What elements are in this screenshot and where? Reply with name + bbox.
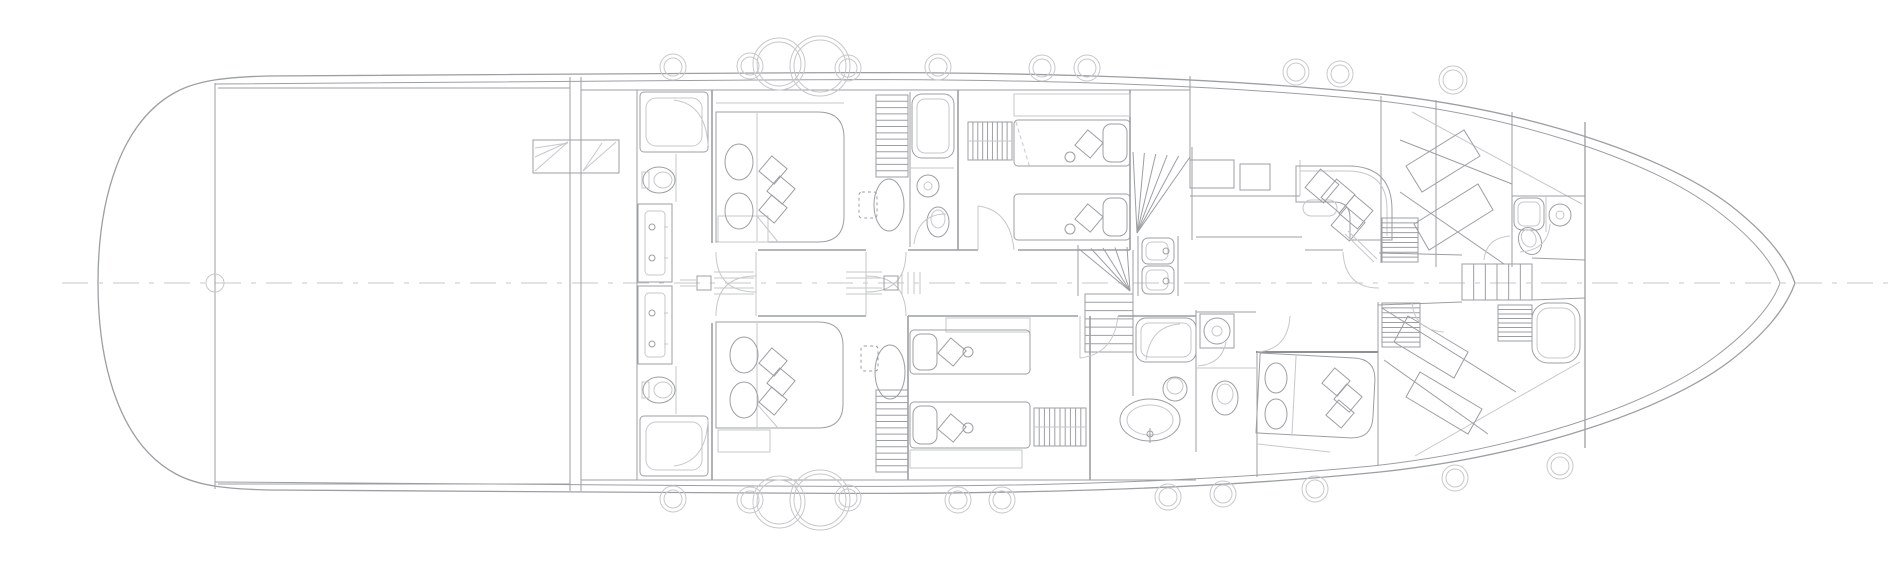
deck-hatch bbox=[790, 470, 850, 530]
utility-room-starboard-line bbox=[1217, 384, 1233, 404]
crew-cabin-starboard bbox=[1382, 303, 1580, 456]
sink bbox=[917, 175, 939, 197]
deck-hatch bbox=[794, 40, 846, 92]
vip-cabin-starboard-line bbox=[718, 430, 770, 452]
toilet bbox=[927, 207, 949, 237]
faucet bbox=[649, 310, 655, 316]
partition-walls-line bbox=[1532, 298, 1585, 300]
porthole bbox=[839, 489, 857, 507]
bathroom-column-port bbox=[638, 92, 708, 282]
twin-cabin-port-line bbox=[917, 99, 949, 153]
pillow bbox=[1103, 124, 1127, 162]
deck-plan-svg bbox=[0, 0, 1900, 568]
partition-walls-line bbox=[1532, 258, 1585, 260]
bathroom-column-port-line bbox=[645, 211, 665, 275]
galley bbox=[1138, 160, 1300, 296]
porthole bbox=[993, 491, 1011, 509]
door-arc bbox=[914, 214, 946, 244]
pillow bbox=[1265, 363, 1287, 393]
porthole bbox=[1331, 65, 1349, 83]
doors bbox=[716, 206, 1510, 358]
porthole bbox=[741, 491, 759, 509]
vip-cabin-starboard-line bbox=[757, 404, 778, 428]
crew-cabin-port-line bbox=[1412, 112, 1582, 204]
porthole bbox=[1287, 63, 1305, 81]
twin-cabin-starboard-line bbox=[910, 450, 1022, 468]
nightstand bbox=[1075, 130, 1103, 158]
crew-cabin-port bbox=[1382, 112, 1582, 264]
porthole bbox=[1078, 59, 1096, 77]
vip-cabin-port bbox=[716, 95, 908, 242]
faucet bbox=[649, 255, 655, 261]
vip-cabin-starboard bbox=[716, 322, 908, 472]
bathroom-column-port-line bbox=[646, 98, 702, 146]
bathroom-column-starboard bbox=[638, 286, 708, 476]
nightstand bbox=[1075, 204, 1103, 232]
stairs-fan-main bbox=[1133, 152, 1137, 233]
washer bbox=[1200, 314, 1234, 348]
porthole bbox=[1306, 480, 1324, 498]
stool bbox=[1065, 224, 1075, 234]
bathroom-column-starboard-line bbox=[645, 293, 665, 357]
bow-bathroom-port-line bbox=[1518, 202, 1540, 226]
utility-room-starboard-line bbox=[1212, 326, 1222, 336]
faucet bbox=[649, 224, 655, 230]
aft-deck-line bbox=[535, 143, 568, 148]
yacht-deck-plan-page bbox=[0, 0, 1900, 568]
pillow bbox=[730, 337, 758, 373]
porthole bbox=[1551, 457, 1569, 475]
pillow bbox=[1103, 198, 1127, 236]
twin-cabin-port-line bbox=[1014, 94, 1130, 116]
crew-cabin-starboard-line bbox=[1384, 360, 1488, 434]
toilet bbox=[1212, 381, 1238, 415]
counter bbox=[1190, 160, 1234, 188]
pillow bbox=[725, 193, 753, 229]
crew-cabin-port-line bbox=[1400, 140, 1512, 184]
sofa bbox=[1296, 166, 1392, 240]
toilet bbox=[1163, 377, 1187, 401]
galley-line bbox=[1146, 242, 1168, 260]
bow-bathroom-port-line bbox=[1556, 211, 1564, 219]
twin-cabin-port-line bbox=[931, 210, 945, 228]
berth bbox=[1414, 184, 1493, 250]
stool bbox=[1065, 152, 1075, 162]
cushion bbox=[767, 176, 795, 204]
shower-door-arc bbox=[674, 420, 708, 466]
cushion bbox=[759, 156, 787, 184]
aft-deck-line bbox=[535, 142, 568, 171]
cushion bbox=[1322, 368, 1350, 396]
stairs-fan-main bbox=[1137, 155, 1167, 233]
bathroom-column-port-line bbox=[654, 172, 672, 188]
twin-cabin-port bbox=[910, 92, 1130, 247]
double-bed bbox=[716, 322, 843, 428]
bow-berth bbox=[1532, 303, 1580, 363]
porthole bbox=[1214, 485, 1232, 503]
nightstand bbox=[938, 414, 966, 442]
twin-cabin-starboard bbox=[910, 318, 1086, 468]
utility-room-starboard-line bbox=[1204, 318, 1230, 344]
cushion bbox=[759, 195, 787, 223]
twin-cabin-port-line bbox=[924, 182, 932, 190]
sink bbox=[1549, 204, 1571, 226]
bow-bathroom-port bbox=[1512, 196, 1585, 258]
door-arc bbox=[978, 206, 1014, 250]
pillow bbox=[725, 144, 753, 180]
double-bed bbox=[1256, 353, 1376, 439]
pillow bbox=[1265, 399, 1287, 429]
cushion bbox=[1339, 195, 1373, 229]
shower bbox=[640, 416, 708, 476]
side-table bbox=[874, 179, 904, 231]
shower bbox=[640, 92, 708, 152]
forward-cabin-starboard-line bbox=[1258, 444, 1330, 452]
door-arc bbox=[716, 276, 756, 316]
porthole bbox=[1443, 70, 1463, 90]
forward-cabin-starboard-line bbox=[1292, 355, 1296, 436]
shower-door-arc bbox=[674, 100, 708, 146]
door-leaf bbox=[1345, 234, 1374, 262]
crew-cabin-starboard-line bbox=[1415, 362, 1580, 456]
utility-room-starboard bbox=[1196, 314, 1256, 415]
ladder bbox=[1382, 303, 1420, 347]
doors-line bbox=[1348, 231, 1377, 259]
crew-cabin-starboard-line bbox=[1537, 308, 1575, 358]
door-arc bbox=[1198, 342, 1226, 366]
single-bed bbox=[910, 330, 1030, 374]
shower-door-arc bbox=[1146, 324, 1180, 360]
door-arc bbox=[1484, 236, 1510, 260]
aft-deck bbox=[218, 77, 619, 491]
forward-cabin-starboard bbox=[1256, 352, 1378, 452]
deck-hatch bbox=[794, 474, 846, 526]
bathroom-column-starboard-line bbox=[646, 422, 702, 470]
pillow bbox=[730, 382, 758, 418]
pillow bbox=[913, 334, 937, 370]
single-bed bbox=[910, 402, 1030, 448]
aft-stair-hatch bbox=[533, 140, 619, 173]
cushion bbox=[759, 348, 787, 376]
porthole bbox=[1159, 488, 1177, 506]
nightstand bbox=[938, 338, 966, 366]
deck-hatch bbox=[790, 36, 850, 96]
pillow bbox=[913, 406, 937, 444]
dinette-line bbox=[1300, 171, 1387, 236]
porthole bbox=[839, 59, 857, 77]
stairs-fan-main bbox=[1137, 157, 1190, 233]
shower bbox=[912, 94, 954, 158]
toilet bbox=[643, 377, 675, 403]
crew-cabin-starboard-line bbox=[1382, 308, 1516, 392]
porthole bbox=[1446, 469, 1464, 487]
stairs-fan-lower bbox=[1091, 249, 1130, 292]
single-bed bbox=[1014, 120, 1130, 166]
dinette bbox=[1296, 166, 1392, 241]
galley-line bbox=[1146, 270, 1168, 290]
appliance bbox=[1240, 164, 1270, 190]
faucet bbox=[649, 341, 655, 347]
mid-bathroom-starboard bbox=[1120, 318, 1196, 443]
mid-bathroom-starboard-line bbox=[1167, 378, 1183, 394]
toilet bbox=[643, 167, 675, 193]
vanity bbox=[638, 204, 672, 282]
porthole bbox=[949, 491, 967, 509]
porthole bbox=[741, 57, 759, 75]
berth bbox=[1406, 130, 1480, 192]
mid-bathroom-starboard-line bbox=[1141, 323, 1191, 357]
stairs-fan-main bbox=[1137, 154, 1156, 233]
twin-cabin-port-line bbox=[1016, 122, 1030, 168]
bathroom-column-starboard-line bbox=[654, 382, 672, 398]
cushion bbox=[767, 368, 795, 396]
vanity bbox=[638, 286, 672, 364]
door-arc bbox=[866, 276, 906, 316]
stairs-fan-lower bbox=[1103, 248, 1130, 291]
side-table bbox=[875, 345, 905, 399]
door-arc bbox=[1257, 316, 1290, 352]
partition-walls-line bbox=[1379, 253, 1462, 255]
